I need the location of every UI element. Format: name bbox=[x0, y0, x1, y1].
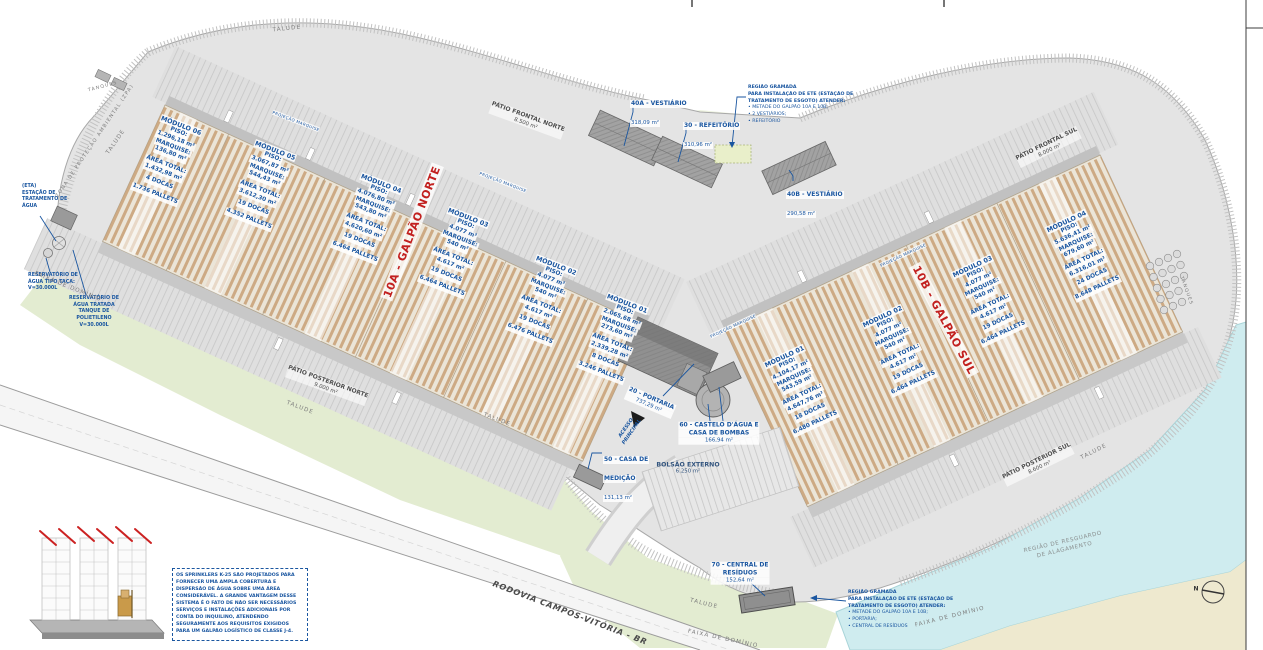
sprinkler-note-box: OS SPRINKLERS K-25 SÃO PROJETADOS PARA F… bbox=[172, 568, 308, 641]
refeitorio-30-label: 30 - REFEITÓRIO 310,96 m² bbox=[683, 112, 740, 150]
casa-medicao-50-label: 50 - CASA DE MEDIÇÃO 131,13 m² bbox=[603, 446, 649, 503]
sprinkler-illustration bbox=[30, 527, 164, 639]
ete-note-south: REGIÃO GRAMADA PARA INSTALAÇÃO DE ETE (E… bbox=[848, 590, 963, 631]
reservatorio-tratada-label: RESERVATÓRIO DE ÁGUA TRATADA TANQUE DE P… bbox=[69, 296, 119, 330]
site-plan-sheet: MÓDULO 06 PISO: 1.296,18 m² MARQUISE: 13… bbox=[0, 0, 1263, 650]
castelo-60-label: 60 - CASTELO D'ÁGUA E CASA DE BOMBAS 166… bbox=[678, 422, 759, 445]
ete-note-north: REGIÃO GRAMADA PARA INSTALAÇÃO DE ETE (E… bbox=[748, 85, 868, 126]
bolsao-externo-label: BOLSÃO EXTERNO 6.250 m² bbox=[656, 462, 719, 475]
vestiario-40a-label: 40A - VESTIÁRIO 318,09 m² bbox=[630, 90, 688, 128]
vestiario-40b-label: 40B - VESTIÁRIO 290,58 m² bbox=[786, 181, 844, 219]
central-residuos-70-label: 70 - CENTRAL DE RESÍDUOS 152,64 m² bbox=[711, 562, 770, 585]
north-indicator: N bbox=[1193, 586, 1198, 593]
